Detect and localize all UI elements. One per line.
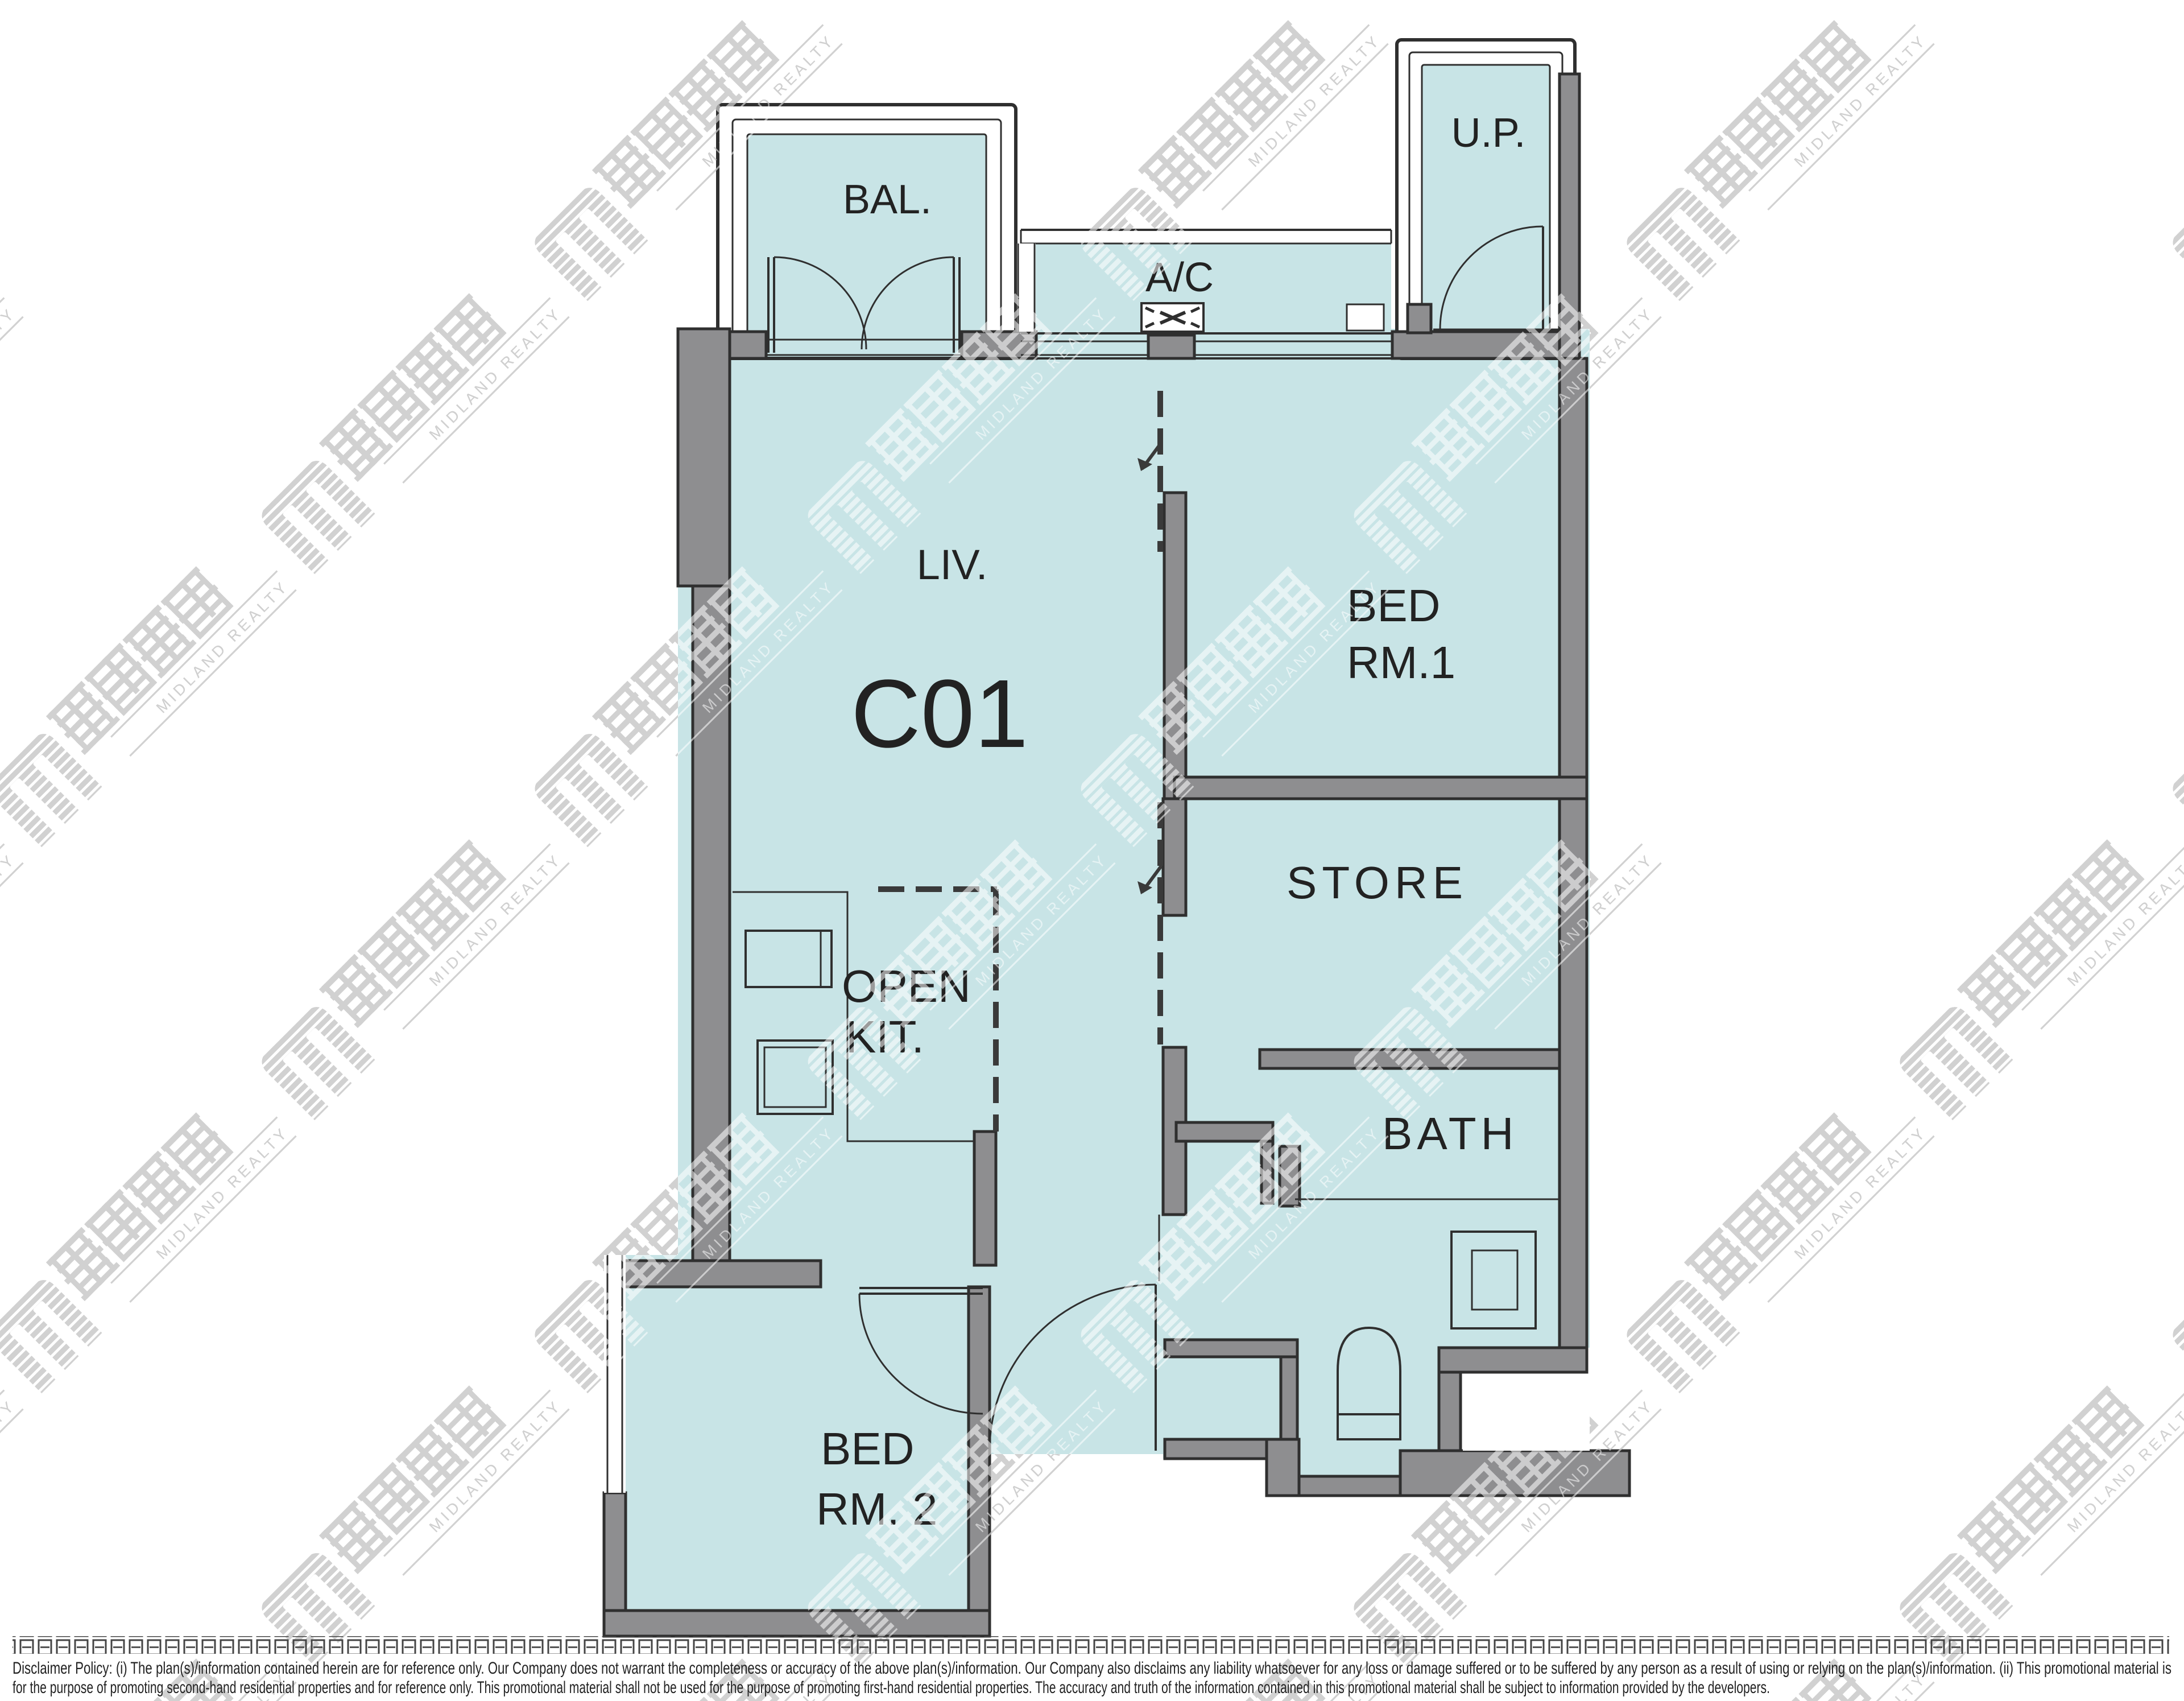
svg-text:RM.1: RM.1 <box>1347 637 1455 688</box>
svg-text:STORE: STORE <box>1287 857 1468 908</box>
svg-text:U.P.: U.P. <box>1451 110 1526 156</box>
svg-text:BAL.: BAL. <box>843 177 932 222</box>
svg-text:for the purpose of promoting s: for the purpose of promoting second-hand… <box>13 1678 1770 1697</box>
svg-text:LIV.: LIV. <box>917 541 988 588</box>
svg-text:BED: BED <box>821 1423 915 1474</box>
svg-text:C01: C01 <box>851 660 1028 768</box>
svg-text:Disclaimer Policy: (i) The pla: Disclaimer Policy: (i) The plan(s)/infor… <box>13 1659 2171 1678</box>
